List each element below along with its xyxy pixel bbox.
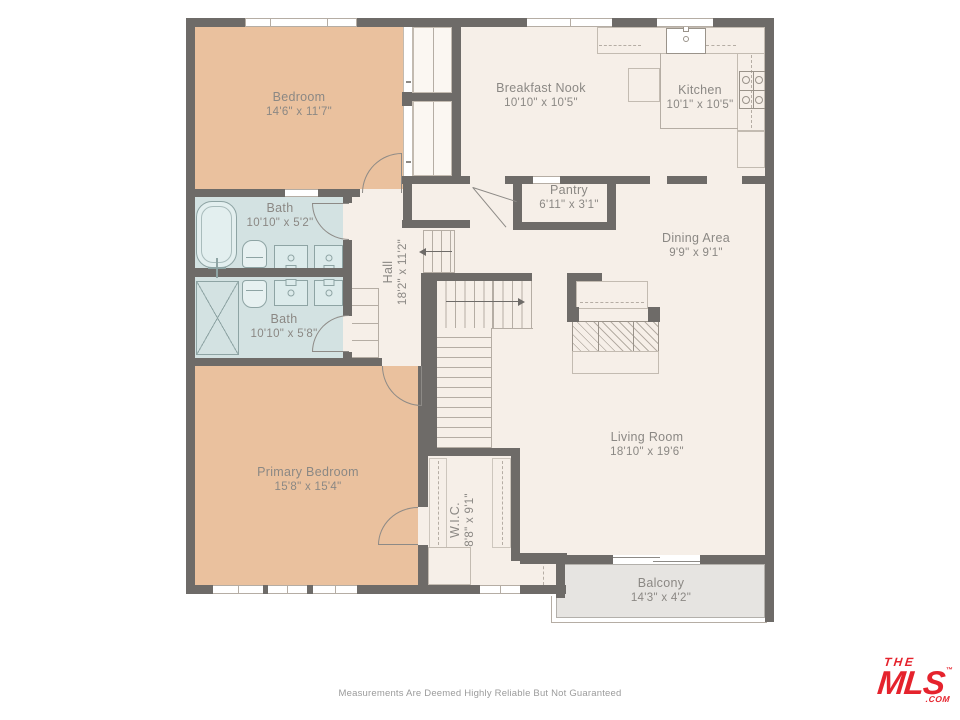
window [527,18,612,27]
window-mullion [270,19,271,26]
wall [667,176,707,184]
shelf-line [352,323,378,324]
trademark-icon: ™ [945,667,953,674]
room-name: Balcony [631,576,691,590]
room-name: Primary Bedroom [257,465,359,479]
room-name: Breakfast Nook [496,81,586,95]
wall [428,448,520,456]
wall [511,553,567,561]
upper-cabinet-dashed [706,45,736,46]
closet-upper [413,27,452,93]
window-mullion [327,19,328,26]
toilet [242,280,267,308]
wic-closet-rod-left [429,458,447,548]
wall [186,189,285,197]
stair-edge-line [492,328,533,329]
sink-vanity [274,280,308,306]
kitchen-sink [666,28,706,54]
hall-label: Hall 18'2" x 11'2" [381,239,411,305]
breakfast-nook-label: Breakfast Nook 10'10" x 10'5" [496,81,586,111]
wall [186,18,195,594]
kitchen-floor-edge-h [660,128,738,129]
wall [343,240,352,316]
burner-icon [755,76,763,84]
room-name: W.I.C. [448,493,462,547]
closet-lower [413,101,452,176]
shelf-edge [378,288,379,358]
wall [513,222,616,230]
room-name: Hall [381,239,395,305]
room-dims: 14'6" x 11'7" [266,107,332,120]
stair-arrow-right-icon [518,298,525,306]
faucet-line [208,267,226,269]
wall [402,176,470,184]
fireplace-niche-dashed [580,302,644,303]
window [285,189,318,197]
bathtub-basin [201,206,232,263]
wall [511,456,520,561]
room-name: Bedroom [266,90,332,104]
upper-cabinet-dashed [599,45,641,46]
living-room-label: Living Room 18'10" x 19'6" [610,430,684,460]
fireplace-hearth [572,351,659,374]
closet-divider-line [433,28,434,92]
window [657,18,713,27]
window [313,585,357,594]
disclaimer-text: Measurements Are Deemed Highly Reliable … [338,688,621,699]
kitchen-label: Kitchen 10'1" x 10'5" [667,83,734,113]
shower [196,281,239,355]
firebox-divider [598,322,599,351]
wall [421,273,437,453]
room-dims: 10'10" x 5'8" [251,329,318,342]
balcony-label: Balcony 14'3" x 4'2" [631,576,691,606]
wall [186,358,382,366]
window-mullion [570,19,571,26]
logo-mls: MLS™ [876,668,953,697]
closet-divider-line [433,102,434,175]
bedroom-label: Bedroom 14'6" x 11'7" [266,90,332,120]
wall [742,176,765,184]
burner-icon [742,96,750,104]
room-name: Pantry [539,183,598,197]
room-dims: 18'10" x 19'6" [610,447,684,460]
room-dims: 10'10" x 5'2" [247,218,314,231]
stove [739,71,766,109]
stair-landing-line [492,281,493,329]
wall [437,273,532,281]
burner-icon [755,96,763,104]
pantry-label: Pantry 6'11" x 3'1" [539,183,598,213]
fireplace-firebox [572,321,659,352]
wall [765,18,774,622]
window [213,585,263,594]
wic-label: W.I.C. 8'8" x 9'1" [448,493,478,547]
window-mullion [245,19,246,26]
shelf-line [352,305,378,306]
stair-arrow-line [426,251,452,252]
kitchen-island [628,68,660,102]
room-dims: 9'9" x 9'1" [662,248,730,261]
stair-arrow-left-icon [419,248,426,256]
room-dims: 18'2" x 11'2" [398,239,411,305]
room-dims: 15'8" x 15'4" [257,482,359,495]
tub-faucet-icon [208,258,226,278]
closet-door-handle [406,81,411,83]
room-dims: 6'11" x 3'1" [539,200,598,213]
shelf-line [352,340,378,341]
shelf-line [352,288,378,289]
window-mullion [287,586,288,593]
wall [402,220,470,228]
dining-area-label: Dining Area 9'9" x 9'1" [662,231,730,261]
firebox-divider [633,322,634,351]
wic-closet-rod-right [492,458,511,548]
window-mullion [500,586,501,593]
fireplace-niche [576,281,648,309]
room-dims: 8'8" x 9'1" [465,493,478,547]
burner-icon [742,76,750,84]
room-name: Bath [247,201,314,215]
window-mullion [238,586,239,593]
room-dims: 10'1" x 10'5" [667,100,734,113]
primary-bedroom-label: Primary Bedroom 15'8" x 15'4" [257,465,359,495]
room-name: Kitchen [667,83,734,97]
window-mullion [335,586,336,593]
wall [556,564,565,598]
stove-grid-line [740,90,765,91]
kitchen-end-cabinet [737,131,765,168]
closet-door-handle [406,161,411,163]
window [268,585,307,594]
wall [567,307,579,322]
wall [648,307,660,322]
room-name: Dining Area [662,231,730,245]
staircase-main-run [437,328,492,449]
room-name: Bath [251,312,318,326]
window [245,18,357,27]
themls-logo: THE MLS™ .COM [875,656,954,704]
hall-closet-shelves [352,288,379,358]
window-mullion [356,19,357,26]
kitchen-floor-edge-v [660,53,661,129]
slider-panel [653,561,700,562]
wall [318,189,360,197]
wic-wardrobe-box [428,547,471,585]
wall [402,92,412,106]
window [480,585,520,594]
bath-lower-label: Bath 10'10" x 5'8" [251,312,318,342]
wic-dashed-line [543,561,544,585]
sliding-glass-door [613,555,700,564]
wall [418,545,428,594]
wall [574,273,602,281]
toilet [242,240,267,268]
stair-arrow-line [446,301,519,302]
wall [452,23,461,184]
room-name: Living Room [610,430,684,444]
slider-panel [613,557,660,558]
room-dims: 10'10" x 10'5" [496,98,586,111]
floor-plan: Bedroom 14'6" x 11'7" Breakfast Nook 10'… [0,0,960,720]
room-dims: 14'3" x 4'2" [631,593,691,606]
bath-upper-label: Bath 10'10" x 5'2" [247,201,314,231]
sink-vanity [314,280,343,306]
